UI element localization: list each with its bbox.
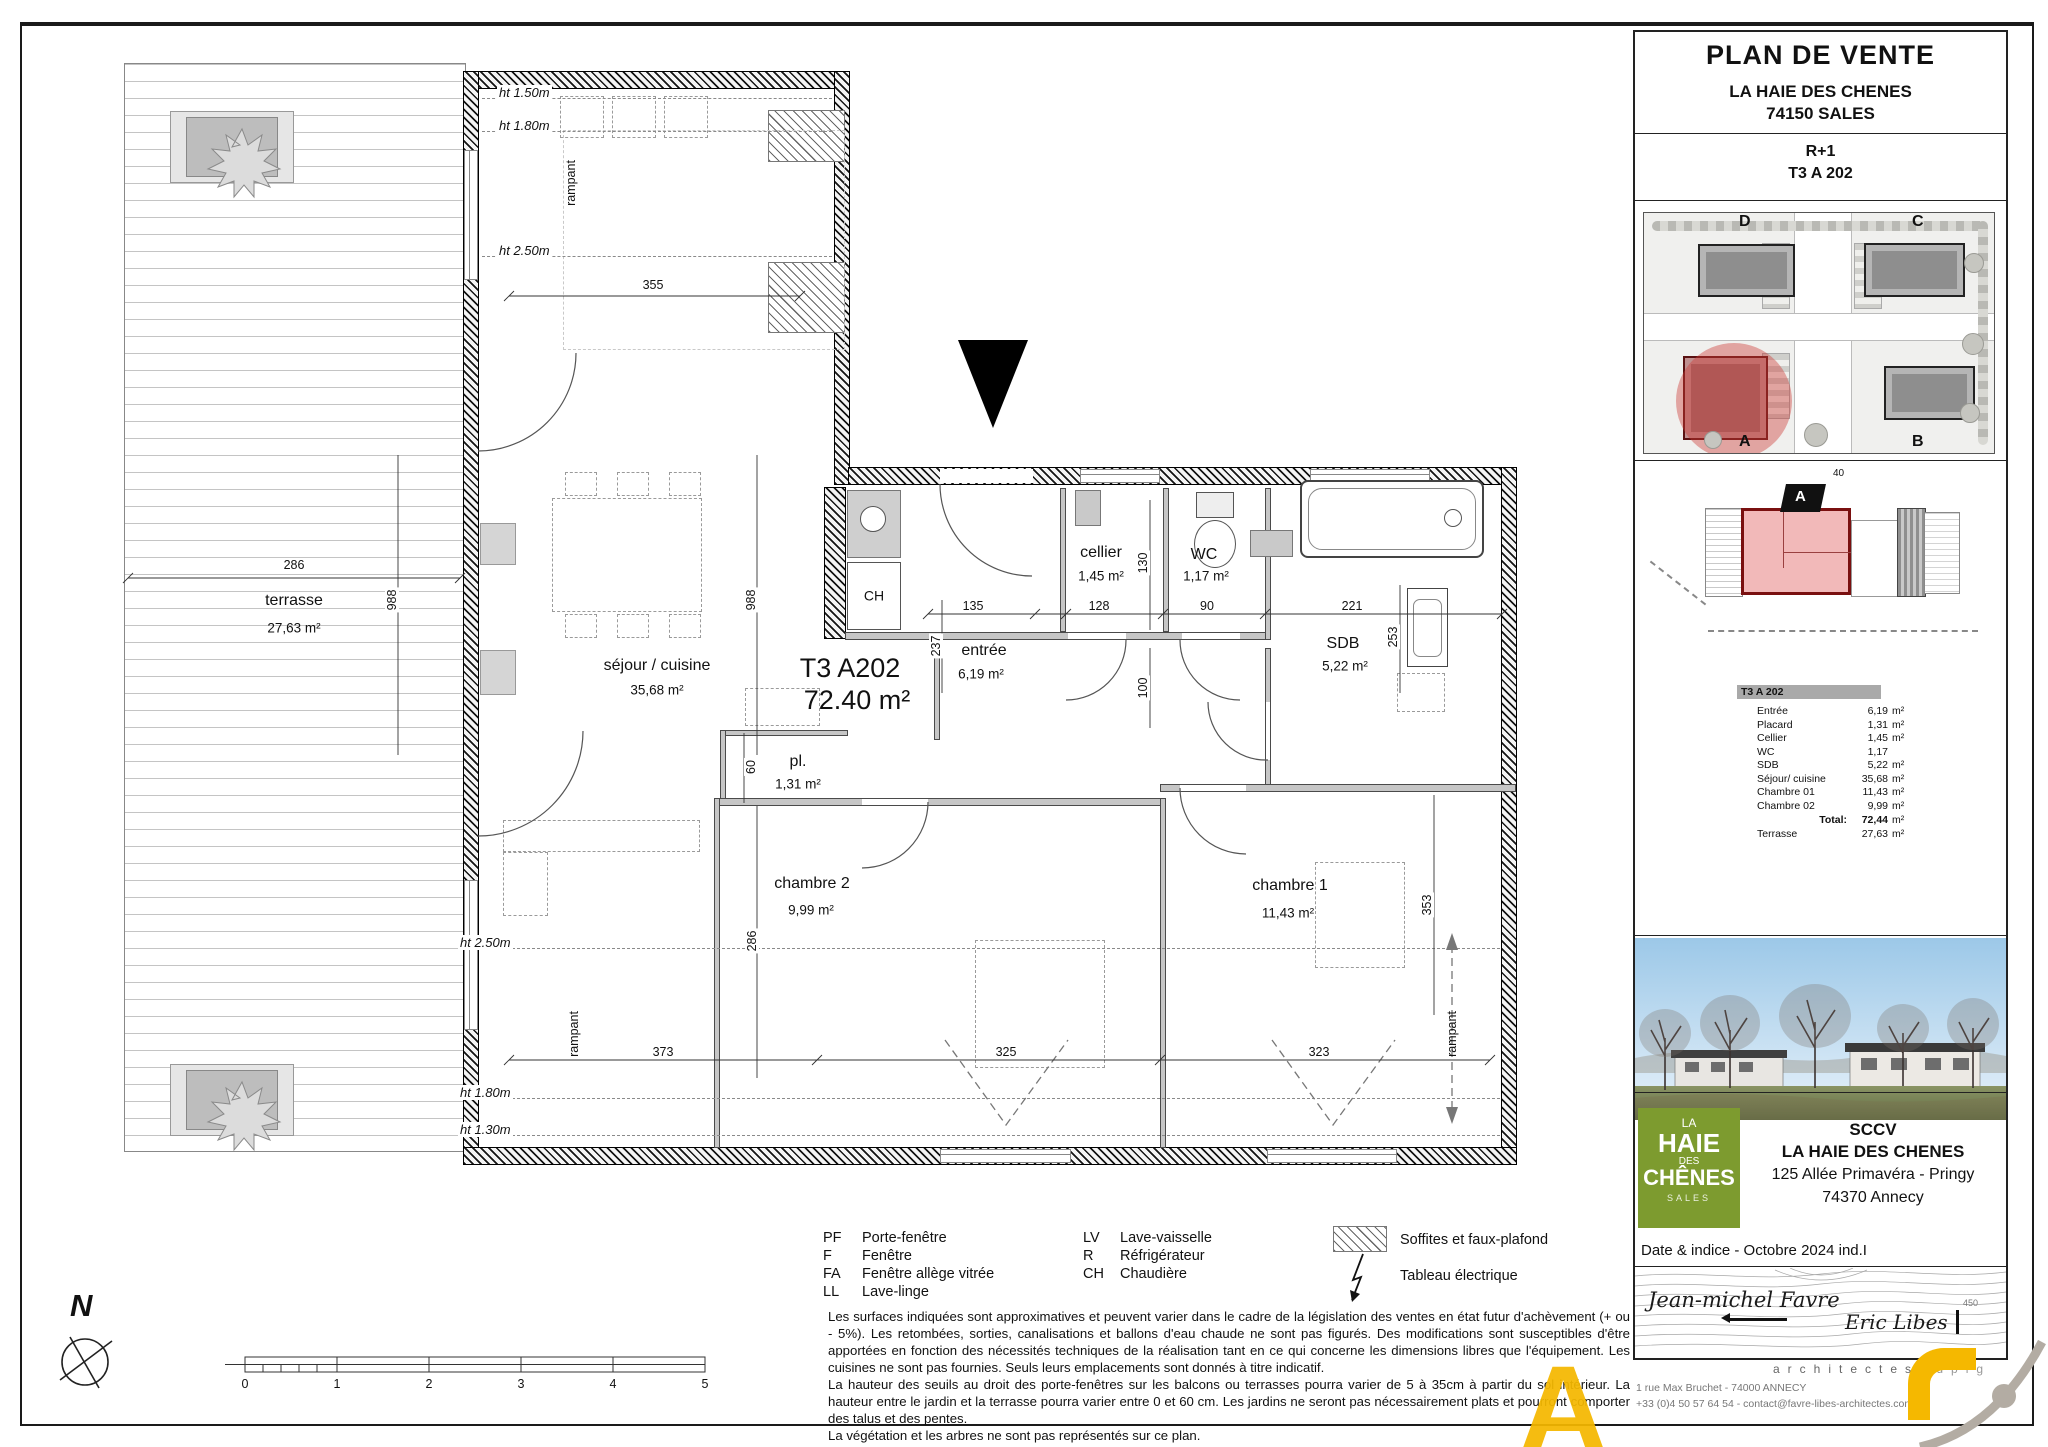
legend-label: Porte-fenêtre bbox=[862, 1230, 947, 1246]
architects-title-1: architectes bbox=[1773, 1362, 1919, 1376]
table-total-value: 72,44 bbox=[1848, 814, 1888, 826]
sheet-title: PLAN DE VENTE bbox=[1633, 40, 2008, 71]
height-label: ht 1.80m bbox=[497, 118, 552, 133]
key-stair-core bbox=[1897, 508, 1926, 597]
boiler-label: CH bbox=[864, 588, 884, 603]
scale-tick: 2 bbox=[424, 1377, 435, 1391]
divider bbox=[1633, 133, 2008, 134]
divider bbox=[1633, 1266, 2008, 1267]
level-label: R+1 bbox=[1633, 143, 2008, 161]
entrance-arrow bbox=[958, 340, 1028, 428]
table-unit: m² bbox=[1892, 786, 1904, 798]
developer-address2: 74370 Annecy bbox=[1743, 1189, 2003, 1207]
logo-line: SALES bbox=[1638, 1193, 1740, 1203]
area-table-header: T3 A 202 bbox=[1737, 685, 1881, 699]
site-building-label-a: A bbox=[1739, 433, 1751, 451]
north-compass bbox=[60, 1337, 112, 1388]
table-row: Séjour/ cuisine bbox=[1757, 773, 1826, 785]
project-name: LA HAIE DES CHENES bbox=[1633, 82, 2008, 102]
architect-logo-swoosh bbox=[1900, 1330, 2048, 1447]
table-unit: m² bbox=[1892, 732, 1904, 744]
room-area-entree: 6,19 m² bbox=[958, 668, 1004, 683]
legend-label: Fenêtre allège vitrée bbox=[862, 1266, 994, 1282]
room-area-sejour: 35,68 m² bbox=[630, 684, 683, 699]
room-area-chambre1: 11,43 m² bbox=[1262, 907, 1314, 922]
table-value: 9,99 bbox=[1848, 800, 1888, 812]
architect-watermark-a: A bbox=[1518, 1352, 1608, 1447]
site-building-c bbox=[1864, 243, 1965, 297]
electrical-panel-icon bbox=[1350, 1254, 1363, 1302]
table-value: 35,68 bbox=[1848, 773, 1888, 785]
dim-label: 128 bbox=[1087, 599, 1112, 613]
project-city: 74150 SALES bbox=[1633, 104, 2008, 124]
dim-label: 286 bbox=[745, 929, 759, 954]
developer-logo: LA HAIE DES CHÊNES SALES bbox=[1638, 1108, 1740, 1228]
site-plan-thumbnail: D C A B bbox=[1643, 212, 1995, 454]
table-value: 5,22 bbox=[1848, 759, 1888, 771]
table-unit: m² bbox=[1892, 719, 1904, 731]
disclaimer-p1: Les surfaces indiquées sont approximativ… bbox=[828, 1308, 1630, 1376]
table-terrace-unit: m² bbox=[1892, 828, 1904, 840]
divider bbox=[1633, 935, 2008, 936]
table-row: WC bbox=[1757, 746, 1775, 758]
room-area-cellier: 1,45 m² bbox=[1078, 570, 1124, 585]
signature-underline-arrow bbox=[1729, 1318, 1787, 1321]
room-label-terrasse: terrasse bbox=[265, 592, 323, 610]
table-unit: m² bbox=[1892, 773, 1904, 785]
legend-abbr: FA bbox=[823, 1266, 841, 1282]
height-label: ht 2.50m bbox=[497, 243, 552, 258]
arrowhead bbox=[1446, 933, 1458, 950]
door-arcs bbox=[478, 353, 1268, 868]
scale-tick: 1 bbox=[332, 1377, 343, 1391]
disclaimer: Les surfaces indiquées sont approximativ… bbox=[828, 1308, 1630, 1444]
dim-label: 90 bbox=[1198, 599, 1216, 613]
table-row: Chambre 02 bbox=[1757, 800, 1815, 812]
dim-label: 373 bbox=[651, 1045, 676, 1059]
table-value: 11,43 bbox=[1848, 786, 1888, 798]
table-value: 1,45 bbox=[1848, 732, 1888, 744]
window-v-marks bbox=[945, 945, 1452, 1125]
planter-plant-icon bbox=[208, 129, 280, 1150]
dim-label: 221 bbox=[1340, 599, 1365, 613]
architect-signature-1: Jean-michel Favre bbox=[1648, 1288, 1840, 1312]
table-total-label: Total: bbox=[1763, 814, 1847, 826]
key-balcony bbox=[1924, 512, 1960, 594]
disclaimer-p3: La végétation et les arbres ne sont pas … bbox=[828, 1427, 1630, 1444]
legend-label: Chaudière bbox=[1120, 1266, 1187, 1282]
table-row: Placard bbox=[1757, 719, 1793, 731]
room-area-chambre2: 9,99 m² bbox=[788, 904, 834, 919]
room-area-sdb: 5,22 m² bbox=[1322, 660, 1368, 675]
key-dim: 40 bbox=[1833, 468, 1844, 479]
legend-symbol-label: Soffites et faux-plafond bbox=[1400, 1232, 1548, 1248]
scale-tick: 5 bbox=[700, 1377, 711, 1391]
dim-label: 355 bbox=[641, 278, 666, 292]
table-row: Cellier bbox=[1757, 732, 1787, 744]
scale-bar bbox=[225, 1357, 705, 1372]
table-row: Chambre 01 bbox=[1757, 786, 1815, 798]
legend-abbr: LV bbox=[1083, 1230, 1100, 1246]
site-tree bbox=[1960, 403, 1980, 423]
legend-label: Lave-vaisselle bbox=[1120, 1230, 1212, 1246]
divider bbox=[1633, 200, 2008, 201]
room-label-sdb: SDB bbox=[1327, 635, 1360, 653]
site-tree bbox=[1704, 431, 1722, 449]
room-label-cellier: cellier bbox=[1080, 544, 1122, 562]
logo-line: HAIE bbox=[1638, 1130, 1740, 1156]
dim-label: 100 bbox=[1136, 676, 1150, 701]
soffit-hatch-legend-icon bbox=[1333, 1226, 1387, 1252]
legend-label: Lave-linge bbox=[862, 1284, 929, 1300]
dim-label: 237 bbox=[929, 634, 943, 659]
table-unit: m² bbox=[1892, 759, 1904, 771]
disclaimer-p2: La hauteur des seuils au droit des porte… bbox=[828, 1376, 1630, 1427]
legend-symbol-label: Tableau électrique bbox=[1400, 1268, 1518, 1284]
room-area-placard: 1,31 m² bbox=[775, 778, 821, 793]
table-value: 6,19 bbox=[1848, 705, 1888, 717]
room-label-placard: pl. bbox=[790, 753, 807, 771]
rampant-label: rampant bbox=[567, 1009, 581, 1059]
room-area-terrasse: 27,63 m² bbox=[267, 622, 320, 637]
height-label: ht 2.50m bbox=[458, 935, 513, 950]
unit-label: T3 A 202 bbox=[1633, 165, 2008, 183]
key-terrace bbox=[1705, 508, 1743, 597]
developer-name2: LA HAIE DES CHENES bbox=[1743, 1142, 2003, 1162]
height-label: ht 1.50m bbox=[497, 85, 552, 100]
room-area-wc: 1,17 m² bbox=[1183, 570, 1229, 585]
rampant-label: rampant bbox=[1445, 1009, 1459, 1059]
table-value: 1,31 bbox=[1848, 719, 1888, 731]
dim-label: 286 bbox=[282, 558, 307, 572]
site-highlight-circle bbox=[1676, 343, 1792, 454]
site-tree bbox=[1964, 253, 1984, 273]
arrowhead bbox=[1446, 1107, 1458, 1124]
scale-tick: 3 bbox=[516, 1377, 527, 1391]
legend-abbr: CH bbox=[1083, 1266, 1104, 1282]
site-building-label-d: D bbox=[1739, 213, 1751, 231]
area-table: T3 A 202 Entrée 6,19 m² Placard 1,31 m² … bbox=[1633, 685, 2008, 865]
room-label-chambre2: chambre 2 bbox=[774, 875, 850, 893]
dim-label: 130 bbox=[1136, 551, 1150, 576]
dim-label: 988 bbox=[385, 588, 399, 613]
legend-label: Fenêtre bbox=[862, 1248, 912, 1264]
right-panel: PLAN DE VENTE LA HAIE DES CHENES 74150 S… bbox=[1633, 30, 2008, 1430]
plan-de-vente-sheet: terrasse 27,63 m² séjour / cuisine 35,68… bbox=[0, 0, 2048, 1447]
key-marker-letter: A bbox=[1795, 488, 1806, 505]
height-label: ht 1.30m bbox=[458, 1122, 513, 1137]
room-label-wc: WC bbox=[1191, 546, 1218, 564]
table-row: SDB bbox=[1757, 759, 1779, 771]
table-unit: m² bbox=[1892, 705, 1904, 717]
architects-contact: +33 (0)4 50 57 64 54 - contact@favre-lib… bbox=[1636, 1398, 1913, 1410]
logo-line: CHÊNES bbox=[1638, 1167, 1740, 1189]
table-total-unit: m² bbox=[1892, 814, 1904, 826]
divider bbox=[1633, 460, 2008, 461]
key-boundary-dashed bbox=[1708, 630, 1978, 632]
site-building-label-c: C bbox=[1912, 213, 1924, 231]
divider bbox=[1633, 1092, 2008, 1093]
dim-label: 325 bbox=[994, 1045, 1019, 1059]
key-boundary-dashed bbox=[1650, 561, 1706, 606]
scale-tick: 0 bbox=[240, 1377, 251, 1391]
contour-elevation: 450 bbox=[1963, 1298, 1978, 1308]
site-road bbox=[1644, 313, 1994, 341]
site-building-d bbox=[1698, 244, 1795, 297]
dim-label: 988 bbox=[744, 588, 758, 613]
developer-name1: SCCV bbox=[1743, 1120, 2003, 1140]
room-label-entree: entrée bbox=[961, 642, 1006, 660]
dim-label: 253 bbox=[1386, 625, 1400, 650]
dim-label: 135 bbox=[961, 599, 986, 613]
table-unit: m² bbox=[1892, 800, 1904, 812]
unit-code: T3 A202 bbox=[800, 654, 901, 684]
site-building-label-b: B bbox=[1912, 433, 1924, 451]
key-unit-rooms bbox=[1783, 508, 1784, 568]
key-neighbor-unit bbox=[1851, 520, 1899, 597]
key-plan-thumbnail: A 40 bbox=[1633, 462, 2008, 688]
legend-abbr: PF bbox=[823, 1230, 842, 1246]
room-label-chambre1: chambre 1 bbox=[1252, 877, 1328, 895]
table-terrace-label: Terrasse bbox=[1757, 828, 1797, 840]
dim-label: 353 bbox=[1420, 893, 1434, 918]
legend-label: Réfrigérateur bbox=[1120, 1248, 1205, 1264]
site-hedge bbox=[1652, 221, 1986, 231]
north-label: N bbox=[70, 1288, 92, 1324]
architects-address: 1 rue Max Bruchet - 74000 ANNECY bbox=[1636, 1382, 1806, 1394]
site-tree bbox=[1804, 423, 1828, 447]
table-value: 1,17 bbox=[1848, 746, 1888, 758]
scale-tick: 4 bbox=[608, 1377, 619, 1391]
dim-label: 60 bbox=[744, 758, 758, 776]
key-unit-rooms bbox=[1783, 552, 1851, 553]
rampant-label: rampant bbox=[564, 158, 578, 208]
table-terrace-value: 27,63 bbox=[1848, 828, 1888, 840]
signature-arrowhead bbox=[1721, 1313, 1730, 1323]
date-indice: Date & indice - Octobre 2024 ind.I bbox=[1641, 1242, 1867, 1259]
room-label-sejour: séjour / cuisine bbox=[604, 657, 711, 675]
dim-label: 323 bbox=[1307, 1045, 1332, 1059]
unit-area: 72.40 m² bbox=[804, 686, 911, 716]
legend-abbr: R bbox=[1083, 1248, 1093, 1264]
legend-abbr: LL bbox=[823, 1284, 839, 1300]
table-row: Entrée bbox=[1757, 705, 1788, 717]
height-label: ht 1.80m bbox=[458, 1085, 513, 1100]
legend-abbr: F bbox=[823, 1248, 832, 1264]
developer-address1: 125 Allée Primavéra - Pringy bbox=[1743, 1166, 2003, 1184]
site-tree bbox=[1962, 333, 1984, 355]
